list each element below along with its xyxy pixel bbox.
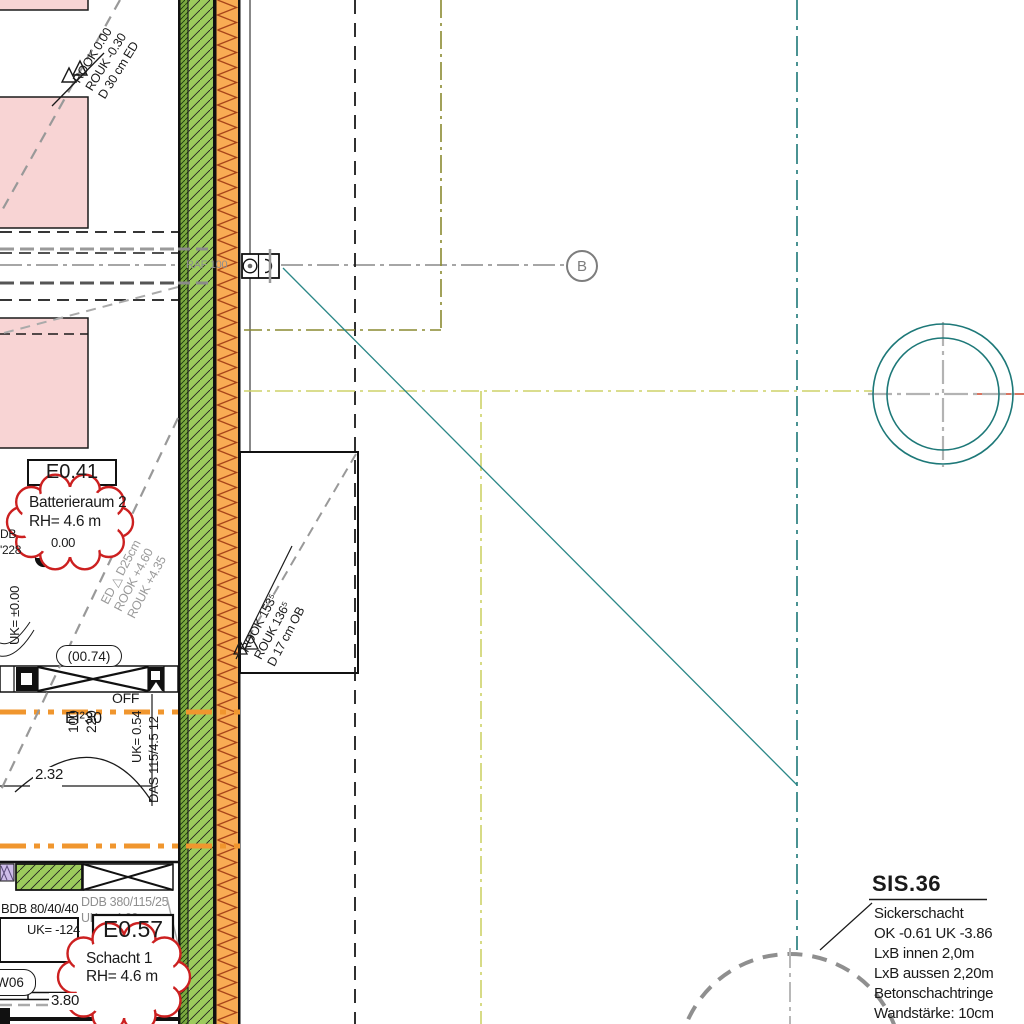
- svg-text:DDB 380/115/25: DDB 380/115/25: [81, 895, 169, 909]
- room1-db: DB: [0, 528, 16, 541]
- sis-line-2: OK -0.61 UK -3.86: [874, 925, 992, 942]
- dim-380: 3.80: [49, 993, 81, 1010]
- door-uk: UK= 0.54: [130, 711, 144, 763]
- sis-line-6: Wandstärke: 10cm: [874, 1005, 994, 1022]
- room2-id: E0.57: [93, 915, 173, 944]
- ref-0074-label: (00.74): [56, 645, 122, 667]
- pink-room-rects: [0, 0, 88, 448]
- room1-uk: UK= ±0.00: [8, 586, 22, 645]
- ref-0074-text: (00.74): [68, 649, 111, 664]
- sis-line-1: Sickerschacht: [874, 905, 963, 922]
- sis-id: SIS.36: [872, 872, 941, 896]
- sis-line-4: LxB aussen 2,20m: [874, 965, 993, 982]
- shaft-circles: [868, 322, 1018, 467]
- door-rating: EI²30: [65, 710, 102, 728]
- room1-id: E0.41: [28, 460, 116, 485]
- room2-name: Schacht 1: [86, 950, 152, 967]
- w06-label: W06: [0, 969, 36, 996]
- w06-text: W06: [0, 975, 24, 990]
- bdb-uk: UK= -124: [27, 923, 80, 937]
- door-assembly: [0, 666, 178, 692]
- grid-bubble-label: B: [577, 258, 587, 275]
- raf-label: RAF 100: [186, 259, 227, 271]
- plan-linework: DDB 380/115/25 UK= +4.60: [0, 0, 1024, 1024]
- teal-diagonal-line: [283, 268, 797, 785]
- room1-height: RH= 4.6 m: [29, 513, 101, 530]
- room2-height: RH= 4.6 m: [86, 968, 158, 985]
- door-off: OFF: [112, 691, 139, 706]
- door-dim-232: 2.32: [33, 767, 65, 784]
- floor-plan-canvas: DDB 380/115/25 UK= +4.60: [0, 0, 1024, 1024]
- wall-fixture: [242, 249, 279, 283]
- sis-line-3: LxB innen 2,0m: [874, 945, 974, 962]
- grid-bubble-b: B: [566, 250, 598, 282]
- sis-line-5: Betonschachtringe: [874, 985, 993, 1002]
- room1-level: 0.00: [51, 536, 75, 550]
- room1-num: '228: [0, 544, 21, 557]
- door-das: DAS 115/4.5 12: [147, 716, 161, 803]
- shallow-diagonal: [0, 287, 178, 334]
- room1-name: Batterieraum 2: [29, 494, 126, 511]
- bdb-label: BDB 80/40/40: [1, 902, 78, 916]
